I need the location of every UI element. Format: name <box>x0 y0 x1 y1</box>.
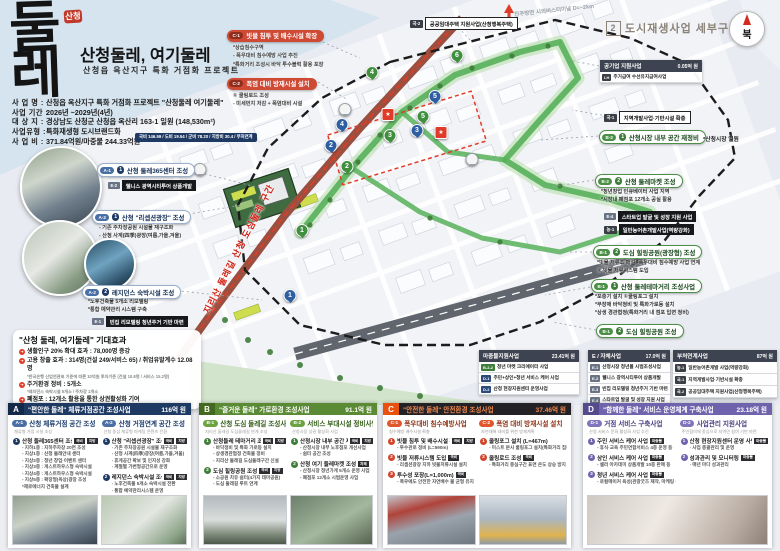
item-bullet: - 쉼터 공간 조성 <box>300 451 373 457</box>
code-badge: C-1 <box>229 32 243 39</box>
table-row: D-1 주민+상인+청년 서비스 케어 사업 <box>479 373 579 384</box>
item-number: 3 <box>588 471 595 478</box>
group-subtitle: 산청 서비스 문화 활성화 사업 추진 <box>589 429 676 435</box>
map-marker: 3 <box>384 129 397 142</box>
row-code-badge: 국-1 <box>675 376 686 384</box>
item-number: 1 <box>388 438 395 445</box>
row-code-badge: D-1 <box>481 375 491 382</box>
number-badge: 2 <box>613 248 621 256</box>
panel-b-header: B "즐거운 둘레" 가로환경 조성사업 91.1억 원 <box>199 403 377 415</box>
info-row: 대 상 지경상남도 산청군 산청읍 옥산리 163-1 일원 (148,530m… <box>12 117 262 127</box>
number-badge: 1 <box>112 213 120 221</box>
panel-letter: C <box>383 403 399 415</box>
table-title: E / 자체사업 <box>592 352 621 360</box>
table-row: E-2 웰니스 광역시티투어 상품개발 <box>588 373 670 384</box>
table-amount: 87억 원 <box>757 353 773 360</box>
panel-c-photos <box>387 495 567 545</box>
row-code-badge: LH <box>602 74 611 81</box>
item-number: 1 <box>13 438 20 445</box>
table-row: 국-1 지역개발사업·기반시설 확충 <box>673 374 777 386</box>
item-header: 2 도심 힐링공원 조성 국비지방 <box>204 467 286 475</box>
callout-title: 산청 둘레테마거리 조성사업 <box>621 282 695 291</box>
section-number-badge: 2 <box>606 21 621 36</box>
poster-title: 산청둘레, 여기둘레 <box>80 42 211 66</box>
item-budget-badge: 국비 <box>74 438 85 444</box>
table-title: 마중물지원사업 <box>483 352 519 360</box>
group-subtitle: 산청 중심 체류형 마케팅 콘텐츠 전환 <box>104 429 188 435</box>
panel-b: B "즐거운 둘레" 가로환경 조성사업 91.1억 원 B-1 산청 도심 둘… <box>199 403 377 548</box>
code-badge: B-1 <box>594 283 608 290</box>
group-code-badge: C-2 <box>479 420 494 427</box>
panel-a-header: A "편안한 둘레" 체류거점공간 조성사업 116억 원 <box>8 403 191 415</box>
compass-icon: 북 <box>729 11 765 47</box>
linked-project-label: 스타트업 발굴 및 성장 지원 사업 <box>618 211 697 222</box>
bullet: *무장애 바닥정비 및 특화가로등 설치 <box>595 301 689 309</box>
callout-b1-park-bullets: *빗물 저류조 매설 -폭우대비 침수예방 사업 연계② 빗물 저류시스템 도입 <box>597 259 700 275</box>
code-badge: B-2 <box>602 134 616 141</box>
row-text: 주민+상인+청년 서비스 케어 사업 <box>493 375 558 381</box>
item-budget-badge: 국비 <box>259 468 270 474</box>
group-header: D-2 사업관리 지원사업 <box>680 418 769 428</box>
table-row: 농-1 일반농어촌개발 사업(역량강화) <box>673 362 777 374</box>
panel-c: C "안전한 둘레" 안전환경 조성사업 37.46억 원 C-1 폭우대비 침… <box>383 403 571 548</box>
project-item: 3 청년 서비스 케어 사업 마중물 - 로컬메이커 육성(관광굿즈 제작, 마… <box>588 471 676 485</box>
item-bullet: - 특화거리 중심구간 표면 온도 상승 방지 <box>489 462 567 468</box>
group-subtitle: 주민협의체 중심으로 지역민 참여 기반 마련 <box>682 429 769 435</box>
panel-letter: D <box>583 403 599 415</box>
table-amount: 0.05억 원 <box>678 63 698 70</box>
callout-c1-bar: C-1 빗물 침투 및 배수시설 확장 <box>227 30 324 42</box>
item-bullet: - 폭우에도 안전한 자연배수 물 균형 유지 <box>397 479 475 485</box>
panel-b-photos <box>203 495 373 545</box>
panel-group: C-2 폭염 대비 방재시설 설치 자연재해 대비를 위한 방재계획 1 쿨링포… <box>479 418 567 488</box>
bullet: - 기존 주차장공원 시설물 재구조화 <box>99 224 181 232</box>
item-bullet: - 미스트 분사 쿨링포그 설치(특화거리 집중) <box>489 445 567 451</box>
number-badge: 2 <box>615 177 623 185</box>
group-name: 사업관리 지원사업 <box>697 418 747 428</box>
photo-cooling-road <box>479 495 568 545</box>
map-marker <box>339 103 352 116</box>
bullet: *노후건축물 5개소 리모델링 <box>88 298 148 306</box>
table-ministry-projects: 부처연계사업 87억 원 농-1 일반농어촌개발 사업(역량강화) 국-1 지역… <box>673 350 777 398</box>
callout-b1-street-bullets: *포충기 설치 ①쿨링포그 설치*무장애 바닥정비 및 특화가로등 설치*상생 … <box>595 293 689 317</box>
panel-a: A "편안한 둘레" 체류거점공간 조성사업 116억 원 A-1 산청 체류거… <box>8 403 191 548</box>
item-bullet: - 산청 사계(四季)광장(여름,가을,겨울) <box>112 451 188 457</box>
callout-c2-bullets: ① 쿨링로드 조성- 미세먼지 저감 + 폭염대비 시설 <box>233 92 317 109</box>
item-number: 2 <box>480 454 487 461</box>
item-budget-badge: 지방 <box>176 474 187 480</box>
callout-a2-plaza-bullets: - 기존 주차장공원 시설물 재구조화- 산청 사계(四季)광장(여름,가을,겨… <box>99 224 181 240</box>
gov-project-label: 지역개발사업·기반시설 확충 <box>619 111 691 124</box>
info-value: 특화재생형 도시브랜드화 <box>46 127 121 136</box>
item-budget-badge: 지방 <box>464 438 475 444</box>
callout-title: 레지던스 숙박시설 조성 <box>112 288 174 297</box>
bullet: - 폭우대비 침수예방 사업 추진 <box>233 52 324 60</box>
bullet: *통합 예약관리 시스템 구축 <box>88 306 148 314</box>
item-header: 1 빗물 침투 및 배수시설 확장 국비지방 <box>388 437 475 445</box>
panel-group: B-1 산청 도심 둘레길 조성사업 지리산 둘레길 도심둘레길 연계 조성 1… <box>203 418 286 490</box>
group-code-badge: A-2 <box>102 420 117 427</box>
group-code-badge: B-1 <box>203 420 218 427</box>
group-header: A-1 산청 체류거점 공간 조성 <box>12 418 98 428</box>
info-value: 경상남도 산청군 산청읍 옥산리 163-1 일원 (148,530m²) <box>46 117 215 126</box>
code-badge: B-2 <box>598 178 612 185</box>
code-badge: A-1 <box>100 167 114 174</box>
budget-breakdown-badge: 국비 146.59 / 도비 19.54 / 군비 78.20 / 지방비 30… <box>135 133 257 142</box>
info-row: 사 업 명산청읍 옥산지구 특화 거점화 프로젝트 "산청둘레 여기둘레" <box>12 98 262 108</box>
info-value: 2026년 ~2029년(4년) <box>46 108 113 117</box>
map-marker <box>194 163 207 176</box>
project-item: 2 산청 여기 둘레마켓 조성 자체 - 산청시장 청년가게 5개소 운영 사업… <box>291 460 373 481</box>
callout-c2-bar: C-2 폭염 대비 방재시설 설치 <box>227 78 317 90</box>
group-name: 거점 서비스 구축사업 <box>604 418 662 428</box>
linked-project-row: 농-1 일반농어촌개발사업(역량강화) <box>604 224 694 235</box>
item-bullet: - 사업 총괄관리 및 운영 <box>690 445 769 451</box>
table-title: 부처연계사업 <box>677 352 708 360</box>
row-code-badge: E-1 <box>590 364 600 371</box>
number-badge: 1 <box>117 166 125 174</box>
panel-title: "편안한 둘레" 체류거점공간 조성사업 <box>24 404 161 414</box>
panel-amount: 23.18억 원 <box>737 404 772 414</box>
item-budget-badge: 지방 <box>176 438 187 444</box>
row-code-badge: B-2-2 <box>481 364 495 371</box>
callout-c1-rainwater: C-1 빗물 침투 및 배수시설 확장 *상습침수구역- 폭우대비 침수예방 사… <box>227 24 324 69</box>
item-bullet: - 리셉션광장 지하 빗물저류시설 설치 <box>397 462 475 468</box>
table-row: E-3 빈집 리모델링 청년주거 기반 마련 <box>588 384 670 395</box>
item-budget-badge: 국비 <box>164 438 175 444</box>
table-header: 부처연계사업 87억 원 <box>673 350 777 362</box>
bullet: *포충기 설치 ①쿨링포그 설치 <box>595 293 689 301</box>
item-header: 2 쿨링로드 조성 국비 <box>480 454 567 462</box>
effect-text: 주거환경 정비 : 5개소 <box>27 381 82 390</box>
item-title: 산청둘레 테마거리 조성사업 <box>213 437 261 445</box>
project-item: 1 쿨링포그 설치 (L=467m) - 미스트 분사 쿨링포그 설치(특화거리… <box>480 437 567 451</box>
effect-note: *한국은행 산업연관표 기준에 따른 10억원 투자기준 (건설 10.8명 /… <box>27 374 195 379</box>
bullet: *청년창업 인큐베이터 사업 지역 <box>601 188 672 196</box>
brand-stamp-seal: 산청 <box>64 9 83 23</box>
group-code-badge: C-1 <box>387 420 402 427</box>
item-title: 청년 서비스 케어 사업 <box>597 471 648 479</box>
callout-b1-healing-park-2: B-1 2 도심 힐링공원 조성 <box>596 324 684 338</box>
item-number: 2 <box>103 474 110 481</box>
item-title: 상인 서비스 케어 사업 <box>597 454 648 462</box>
photo-service-center <box>587 495 768 545</box>
row-code-badge: E-3 <box>590 386 600 393</box>
panel-b-columns: B-1 산청 도심 둘레길 조성사업 지리산 둘레길 도심둘레길 연계 조성 1… <box>199 415 377 490</box>
item-bullet: - 휴식·교육 주민연합서비스 4종 운영 등 <box>597 445 676 451</box>
panel-c-columns: C-1 폭우대비 침수예방사업 침수예방 배수시설 확충 1 빗물 침투 및 배… <box>383 415 571 488</box>
map-marker: 5 <box>429 90 442 103</box>
callout-b2-market-interior: B-2 1 산청시장 내부 공간 재정비 <box>599 130 706 144</box>
item-number: 1 <box>103 438 110 445</box>
item-title: 성과관리 및 모니터링 <box>690 454 739 462</box>
bullet: *특화거리 조성시 바닥 투수블럭 활용 포장 <box>233 61 324 69</box>
group-subtitle: 지리산 둘레길 도심둘레길 연계 조성 <box>205 429 286 435</box>
callout-b1-healing-park: B-1 2 도심 힐링공원(광장형) 조성 <box>593 245 702 259</box>
item-title: 빗물 침투 및 배수시설 확장 <box>397 437 450 445</box>
number-badge: 1 <box>611 282 619 290</box>
item-budget-badge: 국비 <box>452 438 463 444</box>
row-text: 빈집 리모델링 청년주거 기반 마련 <box>602 386 668 392</box>
item-bullet: - 통합 예약관리시스템 운영 <box>112 488 188 494</box>
item-header: 1 산청 "리셉션광장" 조성 국비지방 <box>103 437 188 445</box>
item-number: 1 <box>681 438 688 445</box>
panel-a-columns: A-1 산청 체류거점 공간 조성 체류형 거점 시설 조성 1 산청 둘레36… <box>8 415 191 497</box>
photo-dulle365-center <box>20 146 102 228</box>
linked-code-badge: E-1 <box>92 318 104 325</box>
group-name: 산청 거점연계 공간 조성 <box>119 418 185 428</box>
row-code-badge: 국-2 <box>675 388 686 396</box>
table-row: B-2-2 청년 마켓 크리에이터 사업 <box>479 362 579 373</box>
item-number: 2 <box>204 467 211 474</box>
table-row: D-2 산청 현장지원센터 운영사업 <box>479 384 579 395</box>
table-header: 마중물지원사업 23.41억 원 <box>479 350 579 362</box>
effect-item: ➜ 고용 창출 효과 : 314명(건설 249/서비스 65) / 취업유발계… <box>19 357 195 374</box>
item-bullet: - 지상5층 : 확장형(옥상)광장 조성 <box>22 477 98 483</box>
item-bullet: - 셀러 아카데미 상품개발 10종 판매 등 <box>597 462 676 468</box>
group-header: B-1 산청 도심 둘레길 조성사업 <box>203 418 286 428</box>
item-number: 2 <box>681 454 688 461</box>
project-item: 1 산청 "리셉션광장" 조성 국비지방 - 기존 주차장공원 시설물 재구조화… <box>103 437 188 471</box>
item-title: 산청시장 내부 공간 재정비 <box>300 437 348 445</box>
callout-b2-market-bullets: *청년창업 인큐베이터 사업 지역*시장내 폐점포 12개소 공실 활용 <box>601 188 672 204</box>
table-row: LH 주거급여 수선유지급여사업 <box>600 72 702 83</box>
item-header: 1 산청 둘레365센터 조성 국비지방 <box>13 437 98 445</box>
group-subtitle: 체류형 거점 시설 조성 <box>14 429 98 435</box>
item-bullet: - 지리산 둘레길 도심둘레구간 신설 <box>213 458 286 464</box>
row-text: 청년 마켓 크리에이터 사업 <box>497 364 548 370</box>
row-code-badge: D-2 <box>481 386 491 393</box>
panel-d: D "함께한 둘레" 서비스 운영체계 구축사업 23.18억 원 D-1 거점… <box>583 403 772 548</box>
compass-needle-icon <box>743 14 751 25</box>
row-code-badge: 농-1 <box>675 364 686 372</box>
item-number: 1 <box>588 438 595 445</box>
arrow-bullet-icon: ➜ <box>19 382 25 388</box>
panel-group: A-2 산청 거점연계 공간 조성 산청 중심 체류형 마케팅 콘텐츠 전환 1… <box>102 418 188 497</box>
arrow-bullet-icon: ➜ <box>19 397 25 403</box>
photo-dulle365-building <box>12 495 98 545</box>
photo-residence-lobby <box>84 238 136 290</box>
item-budget-badge: 마중물 <box>741 455 755 461</box>
linked-project-row: E-1 빈집 리모델링 청년주거 기반 마련 <box>92 316 188 327</box>
callout-title: 산청 둘레365센터 조성 <box>127 166 188 175</box>
item-title: 산청 현장지원센터 운영 사업 <box>690 437 753 445</box>
gov-project-label: 공공임대주택 지원사업(산청행복주택) <box>425 17 518 30</box>
panel-d-columns: D-1 거점 서비스 구축사업 산청 서비스 문화 활성화 사업 추진 1 주민… <box>583 415 772 488</box>
callout-title: 산청 둘레마켓 조성 <box>625 177 676 186</box>
panel-c-header: C "안전한 둘레" 안전환경 조성사업 37.46억 원 <box>383 403 571 415</box>
item-title: 주민 서비스 케어 사업 <box>597 437 648 445</box>
code-badge: B-1 <box>599 328 613 335</box>
table-self-projects: E / 자체사업 17.0억 원 E-1 산청시장 청년몰 시범조성사업 E-2… <box>588 350 670 406</box>
row-text: 지역개발사업·기반시설 확충 <box>688 377 743 383</box>
project-item: 1 산청시장 내부 공간 재정비 국비지방 - 산청시장 내부 노후점포 개선사… <box>291 437 373 458</box>
project-item: 1 산청 둘레365센터 조성 국비지방 - 지하1층 : 지하주차장 20면 … <box>13 437 98 490</box>
bullet: *시장내 폐점포 12개소 공실 활용 <box>601 196 672 204</box>
row-code-badge: E-2 <box>590 375 600 382</box>
bullet: *상습침수구역 <box>233 44 324 52</box>
bullet: - 산청 사계(四季)광장(여름,가을,겨울) <box>99 232 181 240</box>
expected-effects-box: "산청 둘레, 여기둘레" 기대효과 ➜ 생활인구 20% 확대 효과 : 78… <box>13 330 201 409</box>
table-public-corp: 공기업 지원사업 0.05억 원 LH 주거급여 수선유지급여사업 <box>600 60 702 83</box>
compass-north-label: 북 <box>742 26 751 41</box>
code-badge: B-1 <box>596 249 610 256</box>
panel-d-header: D "함께한 둘레" 서비스 운영체계 구축사업 23.18억 원 <box>583 403 772 415</box>
effects-title: "산청 둘레, 여기둘레" 기대효과 <box>19 334 195 346</box>
panel-group: C-1 폭우대비 침수예방사업 침수예방 배수시설 확충 1 빗물 침투 및 배… <box>387 418 475 488</box>
item-header: 1 산청시장 내부 공간 재정비 국비지방 <box>291 437 373 445</box>
table-row: 국-2 공공임대주택 지원사업(산청행복주택) <box>673 386 777 398</box>
item-title: 쿨링포그 설치 (L=467m) <box>489 437 548 445</box>
linked-code-badge: E-4 <box>604 213 616 220</box>
project-item: 3 투수성 포장(L=1,000m) 국비 - 폭우에도 안전한 자연배수 물 … <box>388 471 475 485</box>
callout-title: 빗물 침투 및 배수시설 확장 <box>246 31 317 40</box>
item-bullet: - 투수관로 정비 (L=590m) <box>397 445 475 451</box>
item-number: 2 <box>291 461 298 468</box>
group-subtitle: 자연재해 대비를 위한 방재계획 <box>481 429 567 435</box>
group-subtitle: 침수예방 배수시설 확충 <box>389 429 475 435</box>
item-header: 3 청년 서비스 케어 사업 마중물 <box>588 471 676 479</box>
effect-text: 고용 창출 효과 : 314명(건설 249/서비스 65) / 취업유발계수 … <box>27 357 195 374</box>
map-marker: ★ <box>382 108 395 121</box>
item-title: 레지던스 숙박시설 조성 <box>112 473 162 481</box>
item-budget-badge: 국비 <box>523 455 534 461</box>
panel-amount: 116억 원 <box>161 404 191 414</box>
item-header: 3 투수성 포장(L=1,000m) 국비 <box>388 471 475 479</box>
panel-group: D-2 사업관리 지원사업 주민협의체 중심으로 지역민 참여 기반 마련 1 … <box>680 418 769 488</box>
code-badge: C-2 <box>229 80 243 87</box>
arrow-bullet-icon: ➜ <box>19 349 25 355</box>
bullet: *빗물 저류조 매설 -폭우대비 침수예방 사업 연계 <box>597 259 700 267</box>
row-text: 산청시장 청년몰 시범조성사업 <box>602 364 661 370</box>
item-budget-badge: 지방 <box>362 438 373 444</box>
group-name: 폭염 대비 방재시설 설치 <box>496 418 562 428</box>
item-budget-badge: 국비 <box>350 438 361 444</box>
callout-title: 도심 힐링공원(광장형) 조성 <box>623 248 695 257</box>
panel-group: D-1 거점 서비스 구축사업 산청 서비스 문화 활성화 사업 추진 1 주민… <box>587 418 676 488</box>
group-header: A-2 산청 거점연계 공간 조성 <box>102 418 188 428</box>
group-code-badge: D-1 <box>587 420 602 427</box>
table-amount: 23.41억 원 <box>552 353 575 360</box>
group-header: D-1 거점 서비스 구축사업 <box>587 418 676 428</box>
item-header: 2 상인 서비스 케어 사업 마중물 <box>588 454 676 462</box>
panel-d-photos <box>587 495 768 545</box>
panel-a-photos <box>12 495 187 545</box>
code-badge: A-2 <box>85 289 99 296</box>
group-header: C-1 폭우대비 침수예방사업 <box>387 418 475 428</box>
item-number: 1 <box>480 438 487 445</box>
bullet: - 미세먼지 저감 + 폭염대비 시설 <box>233 100 317 108</box>
group-code-badge: D-2 <box>680 420 695 427</box>
map-marker: 4 <box>366 66 379 79</box>
group-name: 폭우대비 침수예방사업 <box>404 418 467 428</box>
panel-group: B-2 서비스 부대시설 정비사업 산청시장 상권 활성화 사업 1 산청시장 … <box>290 418 373 490</box>
item-header: 2 레지던스 숙박시설 조성 국비지방 <box>103 473 188 481</box>
group-header: B-2 서비스 부대시설 정비사업 <box>290 418 373 428</box>
linked-project-label: 빈집 리모델링 청년주거 기반 마련 <box>106 316 188 327</box>
group-code-badge: A-1 <box>12 420 27 427</box>
item-budget-badge: 국비 <box>263 438 274 444</box>
gov-code-badge: 국-2 <box>410 20 423 28</box>
info-label: 사 업 명 <box>12 98 46 108</box>
info-label: 사업 기간 <box>12 108 46 118</box>
photo-theme-street <box>203 495 287 545</box>
item-budget-badge: 지방 <box>87 438 98 444</box>
item-number: 1 <box>204 438 211 445</box>
callout-a2-plaza: A-2 1 산청 "리셉션광장" 조성 <box>92 210 191 224</box>
item-header: 1 주민 서비스 케어 사업 마중물 <box>588 437 676 445</box>
item-header: 1 산청 현장지원센터 운영 사업 마중물 <box>681 437 769 445</box>
callout-title: 산청 "리셉션광장" 조성 <box>122 213 185 222</box>
callout-title: 산청시장 내부 공간 재정비 <box>629 133 699 142</box>
table-header: E / 자체사업 17.0억 원 <box>588 350 670 362</box>
callout-a2-residence: A-2 2 레지던스 숙박시설 조성 <box>82 285 181 299</box>
item-header: 2 빗물 저류시스템 도입 국비 <box>388 454 475 462</box>
item-number: 1 <box>291 438 298 445</box>
item-budget-badge: 지방 <box>272 468 283 474</box>
table-title: 공기업 지원사업 <box>604 62 642 70</box>
item-number: 2 <box>588 454 595 461</box>
group-code-badge: B-2 <box>290 420 305 427</box>
item-title: 쿨링로드 조성 <box>489 454 521 462</box>
table-amount: 17.0억 원 <box>646 353 666 360</box>
panel-amount: 37.46억 원 <box>536 404 571 414</box>
item-budget-badge: 마중물 <box>650 438 664 444</box>
row-text: 산청 현장지원센터 운영사업 <box>493 386 547 392</box>
item-budget-badge: 국비 <box>448 455 459 461</box>
arrow-bullet-icon: ➜ <box>19 358 25 364</box>
item-bullet: - 산청시장 청년가게 5개소 운영 사업 <box>300 468 373 474</box>
item-bullet: *제로에너지 건축물 설계 <box>22 484 98 490</box>
group-name: 서비스 부대시설 정비사업 <box>307 418 373 428</box>
item-budget-badge: 마중물 <box>754 438 768 444</box>
project-item: 1 주민 서비스 케어 사업 마중물 - 휴식·교육 주민연합서비스 4종 운영… <box>588 437 676 451</box>
gov-link-row: 국-1 지역개발사업·기반시설 확충 <box>604 111 691 124</box>
side-note: *산청시장 일원 <box>703 134 739 143</box>
panel-title: "즐거운 둘레" 가로환경 조성사업 <box>215 404 345 414</box>
linked-project-row: E-4 스타트업 발굴 및 성장 지원 사업 <box>604 211 696 222</box>
photo-reception-plaza <box>101 495 187 545</box>
callout-b1-theme-street: B-1 1 산청 둘레테마거리 조성사업 <box>591 279 702 293</box>
callout-c1-bullets: *상습침수구역- 폭우대비 침수예방 사업 추진*특화거리 조성시 바닥 투수블… <box>233 44 324 69</box>
info-label: 대 상 지 <box>12 117 46 127</box>
info-label: 사 업 비 <box>12 137 46 147</box>
item-header: 2 산청 여기 둘레마켓 조성 자체 <box>291 460 373 468</box>
photo-market-garden <box>290 495 374 545</box>
gov-link-row: 국-2 공공임대주택 지원사업(산청행복주택) <box>410 17 518 30</box>
row-text: 웰니스 광역시티투어 상품개발 <box>602 375 661 381</box>
effect-note: *레지던스 숙박시설 5개소 / 주차장 1개소 <box>27 389 195 394</box>
project-item: 1 산청둘레 테마거리 조성사업 국비지방 - 바닥정비 및 특화 가로등 설치… <box>204 437 286 464</box>
project-item: 1 산청 현장지원센터 운영 사업 마중물 - 사업 총괄관리 및 운영 <box>681 437 769 451</box>
panel-letter: A <box>8 403 24 415</box>
linked-code-badge: 농-1 <box>604 226 617 234</box>
item-bullet: - 폐점포 12개소 시범운영 사업 <box>300 475 373 481</box>
callout-c2-heatwave: C-2 폭염 대비 방재시설 설치 ① 쿨링로드 조성- 미세먼지 저감 + 폭… <box>227 72 317 109</box>
item-bullet: - 지상3층 : 게스트하우스형 숙박시설 <box>22 464 98 470</box>
group-header: C-2 폭염 대비 방재시설 설치 <box>479 418 567 428</box>
map-marker: 1 <box>284 289 297 302</box>
gov-code-badge: 국-1 <box>604 114 617 122</box>
item-header: 2 성과관리 및 모니터링 마중물 <box>681 454 769 462</box>
map-marker <box>466 153 479 166</box>
project-item: 2 성과관리 및 모니터링 마중물 - 매년 마다 성과관리 <box>681 454 769 468</box>
item-budget-badge: 마중물 <box>650 455 664 461</box>
item-bullet: - 매년 마다 성과관리 <box>690 462 769 468</box>
group-name: 산청 체류거점 공간 조성 <box>29 418 95 428</box>
bullet: *상생 경관협정(특화거리 내 점포 입면 정비) <box>595 309 689 317</box>
item-number: 3 <box>388 471 395 478</box>
